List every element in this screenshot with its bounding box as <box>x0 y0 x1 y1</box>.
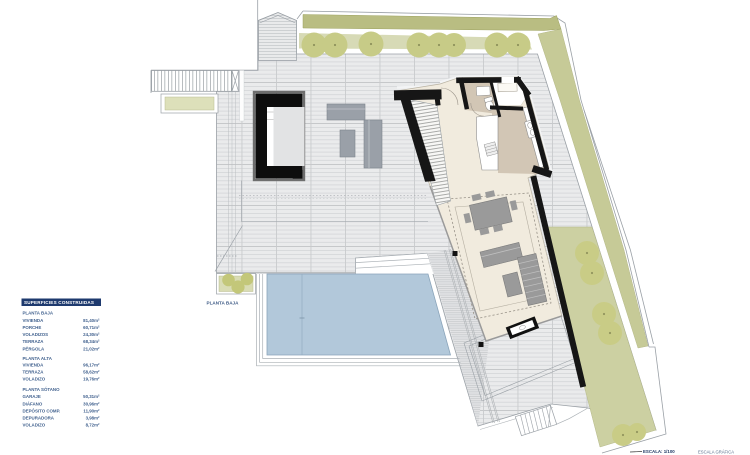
svg-text:58,62m²: 58,62m² <box>83 370 100 375</box>
svg-text:DEPÓSITO COMP.: DEPÓSITO COMP. <box>23 408 61 413</box>
svg-text:VOLADIZOS: VOLADIZOS <box>23 332 49 337</box>
svg-text:8,72m²: 8,72m² <box>86 423 100 428</box>
svg-text:30,96m²: 30,96m² <box>83 401 100 406</box>
svg-text:TERRAZA: TERRAZA <box>23 339 45 344</box>
svg-text:96,17m²: 96,17m² <box>83 363 100 368</box>
svg-text:PÉRGOLA: PÉRGOLA <box>23 346 46 351</box>
svg-text:GARAJE: GARAJE <box>23 394 41 399</box>
svg-text:PLANTA ALTA: PLANTA ALTA <box>23 356 53 361</box>
svg-text:24,30m²: 24,30m² <box>83 332 100 337</box>
svg-text:60,71m²: 60,71m² <box>83 325 100 330</box>
svg-text:50,31m²: 50,31m² <box>83 394 100 399</box>
svg-text:ESCALA GRÁFICA: ESCALA GRÁFICA <box>698 450 734 455</box>
svg-text:TERRAZA: TERRAZA <box>23 370 45 375</box>
svg-text:19,76m²: 19,76m² <box>83 377 100 382</box>
svg-text:VIVIENDA: VIVIENDA <box>23 363 45 368</box>
svg-text:VOLADIZO: VOLADIZO <box>23 377 46 382</box>
svg-text:3,98m²: 3,98m² <box>86 416 100 421</box>
svg-text:VOLADIZO: VOLADIZO <box>23 423 46 428</box>
svg-text:ESCALA: 1/100: ESCALA: 1/100 <box>643 449 675 454</box>
svg-text:11,90m²: 11,90m² <box>83 408 100 413</box>
svg-text:21,02m²: 21,02m² <box>83 346 100 351</box>
svg-text:DEPURADORA: DEPURADORA <box>23 416 55 421</box>
svg-text:PLANTA BAJA: PLANTA BAJA <box>23 311 54 316</box>
svg-text:DIÁFANO: DIÁFANO <box>23 401 43 406</box>
svg-text:81,40m²: 81,40m² <box>83 318 100 323</box>
svg-text:68,34m²: 68,34m² <box>83 339 100 344</box>
svg-text:PORCHE: PORCHE <box>23 325 42 330</box>
svg-text:PLANTA BAJA: PLANTA BAJA <box>207 301 240 306</box>
svg-text:VIVIENDA: VIVIENDA <box>23 318 45 323</box>
svg-text:PLANTA SÓTANO: PLANTA SÓTANO <box>23 387 61 392</box>
svg-text:SUPERFICIES CONSTRUIDAS: SUPERFICIES CONSTRUIDAS <box>24 300 94 305</box>
